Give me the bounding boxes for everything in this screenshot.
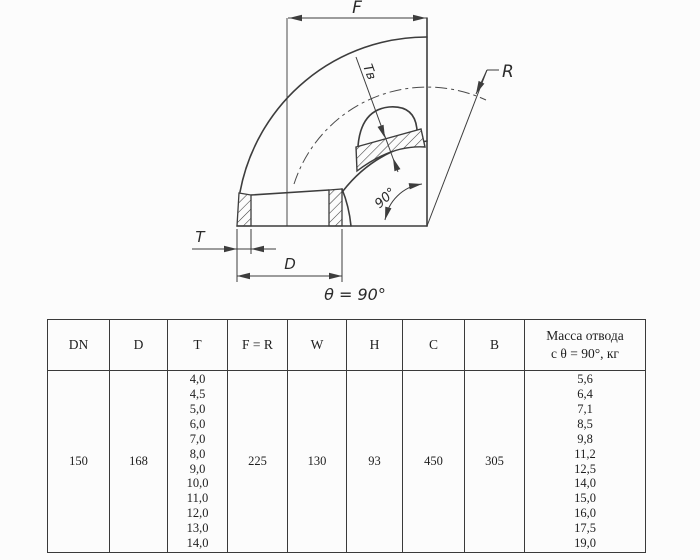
column-dn: DN 150 <box>48 320 110 552</box>
arrow-angle-top <box>409 181 423 190</box>
arrow-f-right <box>413 15 426 21</box>
header-t: T <box>168 320 227 371</box>
arrowheads <box>224 15 484 279</box>
column-t: T 4,0 4,5 5,0 6,0 7,0 8,0 9,0 10,0 11,0 … <box>168 320 228 552</box>
values-mass: 5,6 6,4 7,1 8,5 9,8 11,2 12,5 14,0 15,0 … <box>525 371 645 552</box>
arrow-t-right <box>251 246 264 252</box>
arrow-d-right <box>329 273 342 279</box>
caption-theta: θ = 90° <box>324 285 386 304</box>
column-h: H 93 <box>347 320 403 552</box>
column-w: W 130 <box>288 320 347 552</box>
arrow-f-left <box>289 15 302 21</box>
label-tv: Tв <box>359 62 378 82</box>
column-c: C 450 <box>403 320 465 552</box>
right-wall-section <box>329 189 342 226</box>
label-angle: 90° <box>372 185 399 212</box>
label-d: D <box>284 255 296 273</box>
values-w: 130 <box>288 371 346 552</box>
cut-plane-line <box>427 70 487 226</box>
label-r: R <box>502 62 514 82</box>
arrow-r <box>473 81 484 95</box>
inner-wall-curve <box>342 189 351 226</box>
column-mass: Масса отвода с θ = 90°, кг 5,6 6,4 7,1 8… <box>525 320 645 552</box>
left-wall-section <box>237 193 251 226</box>
column-b: B 305 <box>465 320 525 552</box>
values-c: 450 <box>403 371 464 552</box>
elbow-drawing: F R Tв 90° T D θ = 90° <box>0 0 700 314</box>
header-mass: Масса отвода с θ = 90°, кг <box>525 320 645 371</box>
header-c: C <box>403 320 464 371</box>
values-b: 305 <box>465 371 524 552</box>
values-t: 4,0 4,5 5,0 6,0 7,0 8,0 9,0 10,0 11,0 12… <box>168 371 227 552</box>
dimensions-table: DN 150 D 168 T 4,0 4,5 5,0 6,0 7,0 8,0 9… <box>47 319 646 553</box>
header-h: H <box>347 320 402 371</box>
arrow-tv-lower <box>390 157 400 171</box>
column-f-r: F = R 225 <box>228 320 288 552</box>
values-h: 93 <box>347 371 402 552</box>
values-f-r: 225 <box>228 371 287 552</box>
header-b: B <box>465 320 524 371</box>
values-d: 168 <box>110 371 167 552</box>
header-d: D <box>110 320 167 371</box>
arrow-t-left <box>224 246 237 252</box>
label-t: T <box>195 228 206 246</box>
column-d: D 168 <box>110 320 168 552</box>
arrow-d-left <box>237 273 250 279</box>
header-w: W <box>288 320 346 371</box>
header-dn: DN <box>48 320 109 371</box>
label-f: F <box>352 0 362 18</box>
face-top-edge <box>251 190 329 195</box>
values-dn: 150 <box>48 371 109 552</box>
header-f-r: F = R <box>228 320 287 371</box>
